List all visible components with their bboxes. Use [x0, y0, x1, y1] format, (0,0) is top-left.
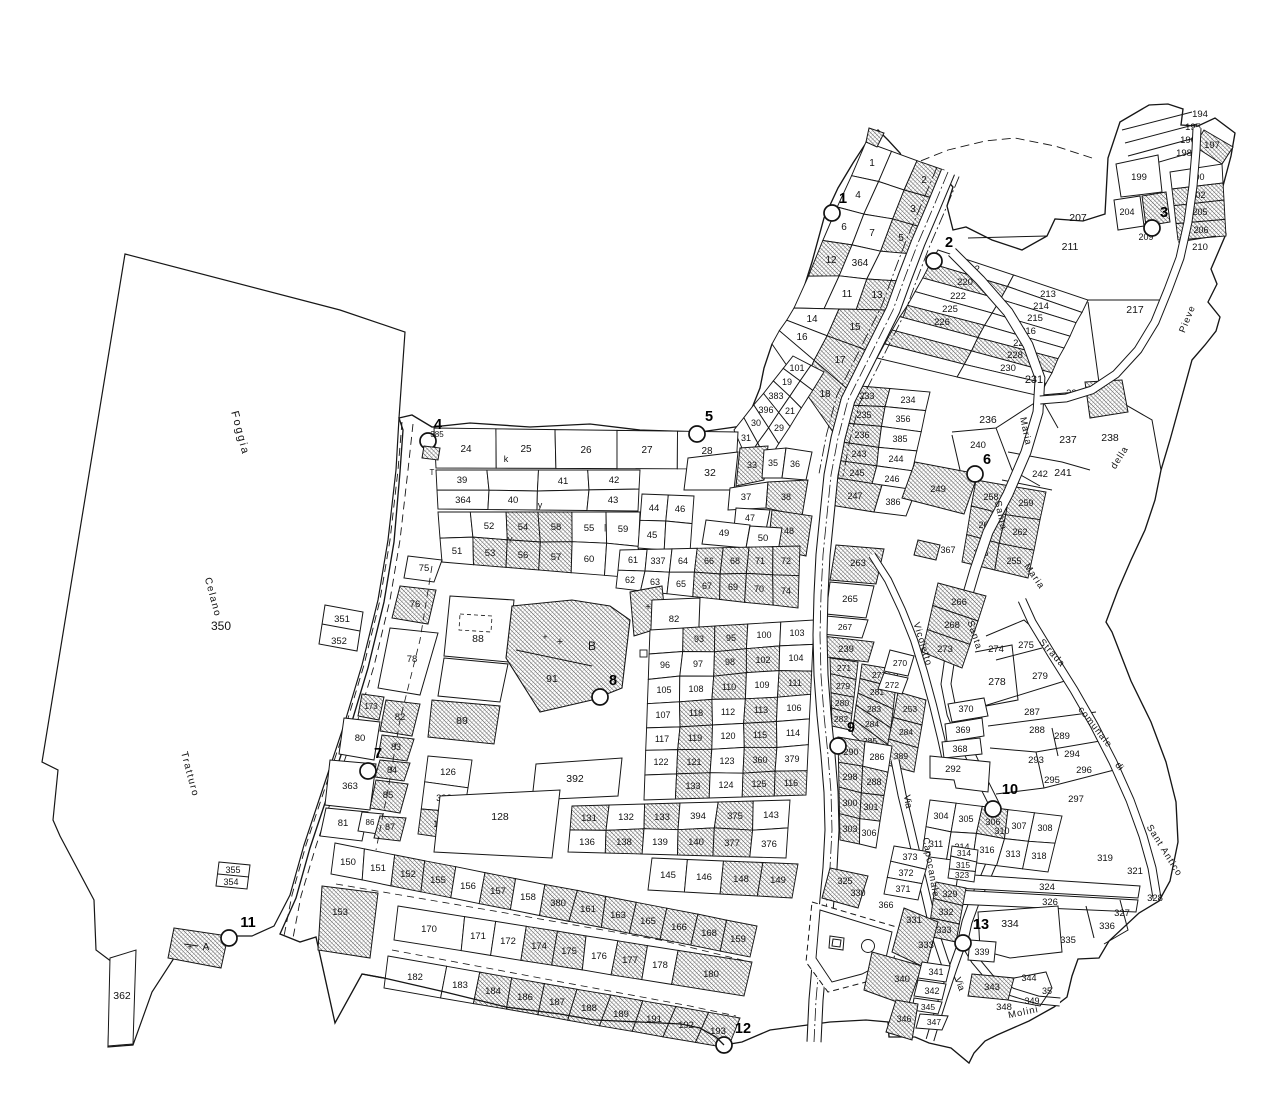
svg-text:133: 133 [654, 812, 670, 823]
svg-text:43: 43 [608, 495, 619, 506]
svg-text:189: 189 [613, 1009, 629, 1020]
svg-text:323: 323 [955, 870, 969, 880]
svg-text:1: 1 [839, 191, 847, 207]
svg-text:112: 112 [721, 707, 735, 717]
svg-text:297: 297 [1068, 794, 1084, 805]
svg-text:115: 115 [753, 730, 767, 740]
svg-text:35: 35 [768, 458, 778, 468]
svg-text:336: 336 [1099, 921, 1115, 932]
svg-text:5: 5 [898, 233, 904, 244]
svg-text:11: 11 [240, 915, 255, 931]
svg-text:333: 333 [936, 925, 951, 935]
svg-text:197: 197 [1204, 140, 1220, 151]
svg-text:295: 295 [1044, 775, 1060, 786]
svg-text:377: 377 [724, 838, 740, 849]
svg-text:287: 287 [1024, 707, 1040, 718]
svg-text:168: 168 [701, 928, 717, 939]
svg-text:165: 165 [640, 916, 656, 927]
svg-text:351: 351 [334, 614, 350, 625]
svg-text:284: 284 [899, 727, 913, 737]
svg-text:265: 265 [842, 594, 858, 605]
svg-text:247: 247 [847, 491, 862, 501]
svg-text:396: 396 [758, 405, 773, 415]
svg-text:346: 346 [896, 1014, 911, 1024]
svg-text:104: 104 [788, 653, 803, 663]
svg-text:17: 17 [834, 355, 846, 366]
svg-text:120: 120 [720, 731, 735, 741]
svg-text:389: 389 [894, 751, 908, 761]
svg-text:308: 308 [1037, 823, 1052, 833]
svg-text:145: 145 [660, 870, 676, 881]
svg-text:249: 249 [930, 484, 946, 495]
svg-text:373: 373 [902, 852, 917, 862]
svg-text:356: 356 [895, 414, 910, 424]
svg-text:204: 204 [1119, 207, 1134, 217]
svg-text:163: 163 [610, 910, 626, 921]
svg-text:46: 46 [675, 504, 686, 515]
svg-text:6: 6 [983, 452, 991, 468]
svg-text:42: 42 [609, 475, 620, 486]
svg-text:133: 133 [685, 781, 700, 791]
svg-text:380: 380 [550, 898, 566, 909]
svg-text:225: 225 [942, 304, 958, 315]
svg-text:58: 58 [551, 522, 562, 533]
svg-text:263: 263 [850, 558, 866, 569]
svg-text:344: 344 [1021, 973, 1036, 983]
svg-text:211: 211 [1062, 241, 1079, 253]
svg-text:8: 8 [609, 673, 617, 689]
svg-text:206: 206 [1193, 225, 1208, 235]
svg-text:166: 166 [671, 922, 687, 933]
svg-text:59: 59 [618, 524, 629, 535]
svg-text:106: 106 [786, 703, 801, 713]
svg-text:363: 363 [342, 781, 358, 792]
svg-text:72: 72 [781, 556, 791, 566]
svg-text:255: 255 [1006, 556, 1021, 566]
svg-text:19: 19 [782, 377, 792, 387]
svg-text:32: 32 [704, 467, 716, 479]
svg-text:33: 33 [747, 460, 757, 470]
svg-text:6: 6 [841, 222, 847, 233]
svg-text:259: 259 [1018, 498, 1033, 508]
svg-text:159: 159 [730, 934, 746, 945]
svg-text:76: 76 [410, 599, 421, 610]
svg-text:331: 331 [906, 915, 922, 926]
svg-text:171: 171 [470, 931, 486, 942]
svg-text:152: 152 [400, 869, 416, 880]
svg-text:A: A [203, 942, 210, 953]
svg-text:275: 275 [1018, 640, 1034, 651]
svg-text:300: 300 [842, 798, 857, 808]
svg-text:172: 172 [500, 936, 516, 947]
svg-text:82: 82 [669, 614, 680, 625]
svg-text:51: 51 [452, 546, 463, 557]
svg-text:2: 2 [945, 235, 953, 251]
svg-text:86: 86 [366, 818, 375, 827]
svg-text:198: 198 [1176, 148, 1192, 159]
svg-text:364: 364 [852, 258, 869, 269]
svg-text:242: 242 [1032, 469, 1048, 480]
svg-text:327: 327 [1114, 908, 1130, 919]
svg-text:40: 40 [508, 495, 519, 506]
svg-text:236: 236 [979, 414, 997, 426]
svg-text:132: 132 [618, 812, 634, 823]
svg-text:|: | [604, 523, 606, 532]
svg-text:35: 35 [1042, 986, 1052, 996]
svg-text:334: 334 [1001, 918, 1019, 930]
svg-text:360: 360 [752, 755, 767, 765]
svg-text:87: 87 [385, 822, 395, 832]
svg-text:296: 296 [1076, 765, 1092, 776]
svg-text:289: 289 [1054, 731, 1070, 742]
svg-text:217: 217 [1126, 304, 1144, 316]
svg-text:10: 10 [1002, 782, 1018, 798]
svg-text:7: 7 [374, 746, 382, 762]
svg-text:29: 29 [774, 423, 784, 433]
svg-text:149: 149 [770, 875, 786, 886]
svg-text:394: 394 [690, 811, 706, 822]
svg-text:Y: Y [507, 536, 513, 545]
svg-text:271: 271 [837, 663, 851, 673]
svg-text:335: 335 [1060, 935, 1076, 946]
svg-text:111: 111 [788, 678, 802, 688]
svg-text:48: 48 [784, 526, 794, 536]
svg-text:379: 379 [784, 754, 799, 764]
svg-text:230: 230 [1000, 363, 1016, 374]
svg-text:176: 176 [591, 951, 607, 962]
svg-text:304: 304 [933, 811, 948, 821]
svg-text:80: 80 [355, 733, 366, 744]
svg-text:283: 283 [867, 704, 881, 714]
svg-text:228: 228 [1007, 350, 1023, 361]
svg-text:236: 236 [854, 430, 869, 440]
svg-text:294: 294 [1064, 749, 1080, 760]
svg-text:5: 5 [705, 409, 713, 425]
svg-text:278: 278 [988, 676, 1006, 688]
svg-text:279: 279 [836, 681, 850, 691]
svg-text:75: 75 [419, 563, 430, 574]
svg-text:343: 343 [984, 982, 1000, 993]
svg-text:215: 215 [1027, 313, 1043, 324]
svg-text:355: 355 [225, 865, 240, 875]
svg-text:339: 339 [974, 947, 989, 957]
svg-text:194: 194 [1192, 109, 1208, 120]
svg-text:47: 47 [745, 513, 755, 523]
svg-text:107: 107 [655, 710, 670, 720]
svg-text:98: 98 [725, 657, 735, 667]
svg-text:153: 153 [332, 907, 348, 918]
svg-text:2: 2 [921, 175, 927, 186]
svg-text:180: 180 [703, 969, 719, 980]
svg-text:66: 66 [704, 556, 714, 566]
svg-text:21: 21 [785, 406, 795, 416]
svg-text:385: 385 [892, 434, 907, 444]
svg-text:124: 124 [718, 780, 733, 790]
svg-text:324: 324 [1039, 882, 1055, 893]
svg-text:280: 280 [835, 698, 849, 708]
svg-text:370: 370 [958, 704, 973, 714]
svg-text:274: 274 [988, 644, 1004, 655]
svg-text:138: 138 [616, 837, 632, 848]
svg-text:253: 253 [903, 704, 917, 714]
svg-text:53: 53 [485, 548, 496, 559]
svg-text:70: 70 [754, 584, 764, 594]
svg-text:146: 146 [696, 872, 712, 883]
svg-text:24: 24 [460, 444, 472, 455]
svg-text:31: 31 [741, 433, 751, 443]
svg-text:26: 26 [580, 445, 592, 456]
svg-text:333: 333 [918, 940, 934, 951]
svg-text:11: 11 [842, 289, 853, 300]
svg-text:128: 128 [491, 811, 509, 823]
svg-text:392: 392 [566, 773, 584, 785]
svg-text:210: 210 [1192, 242, 1208, 253]
svg-text:7: 7 [869, 228, 875, 239]
svg-text:279: 279 [1032, 671, 1048, 682]
svg-text:350: 350 [211, 619, 231, 633]
svg-text:55: 55 [584, 523, 595, 534]
svg-text:56: 56 [518, 550, 529, 561]
svg-text:220: 220 [957, 277, 973, 288]
svg-text:4: 4 [855, 190, 861, 201]
svg-text:89: 89 [456, 715, 468, 727]
svg-text:57: 57 [551, 552, 562, 563]
svg-text:352: 352 [331, 636, 347, 647]
svg-text:383: 383 [768, 391, 783, 401]
svg-text:+: + [187, 942, 192, 952]
svg-text:156: 156 [460, 881, 476, 892]
svg-text:231: 231 [1025, 374, 1043, 386]
svg-text:183: 183 [452, 980, 468, 991]
svg-text:375: 375 [727, 811, 743, 822]
svg-text:240: 240 [970, 440, 986, 451]
svg-text:272: 272 [885, 680, 899, 690]
svg-text:187: 187 [549, 997, 565, 1008]
svg-text:342: 342 [924, 986, 939, 996]
svg-text:288: 288 [1029, 725, 1045, 736]
svg-text:139: 139 [652, 837, 668, 848]
svg-text:246: 246 [884, 474, 899, 484]
svg-text:305: 305 [958, 814, 973, 824]
svg-text:125: 125 [751, 779, 766, 789]
svg-text:123: 123 [719, 756, 734, 766]
svg-text:93: 93 [694, 634, 704, 644]
svg-text:113: 113 [754, 705, 768, 715]
svg-text:148: 148 [733, 874, 749, 885]
svg-text:306: 306 [861, 828, 876, 838]
svg-text:131: 131 [581, 813, 597, 824]
svg-text:298: 298 [842, 772, 857, 782]
svg-text:88: 88 [472, 633, 484, 645]
svg-text:136: 136 [579, 837, 595, 848]
svg-text:207: 207 [1069, 212, 1087, 224]
svg-text:30: 30 [751, 418, 761, 428]
svg-text:367: 367 [940, 545, 955, 555]
svg-text:69: 69 [728, 582, 738, 592]
svg-text:329: 329 [942, 889, 957, 899]
svg-text:37: 37 [741, 492, 752, 503]
svg-text:234: 234 [900, 395, 915, 405]
svg-text:303: 303 [842, 824, 857, 834]
svg-text:126: 126 [440, 767, 456, 778]
svg-text:284: 284 [865, 719, 879, 729]
svg-text:64: 64 [678, 556, 688, 566]
svg-text:174: 174 [531, 941, 547, 952]
svg-text:182: 182 [407, 972, 423, 983]
svg-text:340: 340 [894, 974, 910, 985]
svg-text:52: 52 [484, 521, 495, 532]
svg-text:301: 301 [863, 802, 878, 812]
svg-text:110: 110 [722, 682, 736, 692]
svg-text:292: 292 [945, 764, 961, 775]
svg-text:143: 143 [763, 810, 779, 821]
svg-text:386: 386 [885, 497, 900, 507]
svg-text:273: 273 [937, 644, 953, 655]
svg-text:12: 12 [735, 1021, 751, 1037]
svg-text:262: 262 [1012, 527, 1027, 537]
svg-text:244: 244 [888, 454, 903, 464]
svg-text:+: + [542, 632, 547, 642]
svg-text:44: 44 [649, 503, 660, 514]
svg-text:177: 177 [622, 955, 638, 966]
svg-text:1: 1 [869, 158, 875, 169]
svg-text:+: + [557, 636, 563, 648]
svg-text:330: 330 [850, 888, 865, 898]
svg-text:347: 347 [927, 1017, 941, 1027]
svg-text:27: 27 [641, 445, 653, 456]
svg-text:151: 151 [370, 863, 386, 874]
svg-text:105: 105 [656, 685, 671, 695]
svg-text:+: + [645, 602, 651, 613]
svg-text:15: 15 [849, 322, 861, 333]
svg-text:150: 150 [340, 857, 356, 868]
svg-text:121: 121 [686, 757, 701, 767]
svg-text:238: 238 [1101, 432, 1119, 444]
svg-text:369: 369 [955, 725, 970, 735]
svg-text:237: 237 [1059, 434, 1077, 446]
svg-text:235: 235 [856, 410, 871, 420]
svg-text:293: 293 [1028, 755, 1044, 766]
svg-text:318: 318 [1031, 851, 1046, 861]
svg-text:54: 54 [518, 522, 529, 533]
svg-text:371: 371 [895, 884, 910, 894]
svg-text:117: 117 [655, 734, 669, 744]
svg-text:239: 239 [838, 644, 854, 655]
svg-text:170: 170 [421, 924, 437, 935]
svg-text:286: 286 [869, 752, 884, 762]
svg-text:368: 368 [952, 744, 967, 754]
svg-text:B: B [588, 639, 596, 653]
svg-text:362: 362 [113, 990, 131, 1002]
svg-text:12: 12 [825, 255, 837, 266]
svg-text:81: 81 [338, 818, 349, 829]
svg-text:328: 328 [1147, 893, 1163, 904]
svg-text:337: 337 [650, 556, 665, 566]
svg-text:325: 325 [837, 876, 852, 886]
svg-text:91: 91 [546, 673, 558, 685]
svg-text:49: 49 [719, 528, 730, 539]
svg-text:97: 97 [693, 659, 703, 669]
svg-text:65: 65 [676, 579, 686, 589]
svg-text:14: 14 [806, 314, 818, 325]
svg-text:366: 366 [878, 900, 893, 910]
svg-text:k: k [504, 454, 509, 464]
svg-text:222: 222 [950, 291, 966, 302]
svg-text:321: 321 [1127, 866, 1143, 877]
svg-text:60: 60 [584, 554, 595, 565]
svg-text:38: 38 [781, 492, 791, 502]
svg-text:140: 140 [688, 837, 704, 848]
svg-text:205: 205 [1192, 207, 1207, 217]
svg-text:114: 114 [786, 728, 800, 738]
svg-text:313: 313 [1005, 849, 1020, 859]
svg-text:103: 103 [789, 628, 804, 638]
svg-text:316: 316 [979, 845, 994, 855]
svg-text:18: 18 [819, 389, 831, 400]
svg-text:71: 71 [755, 556, 765, 566]
svg-text:61: 61 [628, 555, 638, 565]
svg-text:68: 68 [730, 556, 740, 566]
svg-text:188: 188 [581, 1003, 597, 1014]
svg-text:16: 16 [796, 332, 808, 343]
svg-text:319: 319 [1097, 853, 1113, 864]
svg-text:268: 268 [944, 620, 960, 631]
svg-text:307: 307 [1011, 821, 1026, 831]
svg-text:67: 67 [702, 581, 712, 591]
svg-text:364: 364 [455, 495, 471, 506]
svg-text:96: 96 [660, 660, 670, 670]
svg-text:155: 155 [430, 875, 446, 886]
svg-text:314: 314 [957, 848, 971, 858]
svg-text:332: 332 [938, 907, 953, 917]
svg-text:108: 108 [688, 684, 703, 694]
svg-text:100: 100 [756, 630, 771, 640]
svg-text:62: 62 [625, 575, 635, 585]
svg-text:T: T [430, 468, 435, 477]
svg-text:119: 119 [688, 733, 702, 743]
svg-text:122: 122 [653, 757, 668, 767]
svg-text:186: 186 [517, 992, 533, 1003]
svg-text:50: 50 [758, 533, 769, 544]
svg-text:270: 270 [893, 658, 907, 668]
svg-text:13: 13 [973, 917, 989, 933]
svg-text:266: 266 [951, 597, 967, 608]
svg-text:173: 173 [364, 702, 378, 711]
svg-text:y: y [538, 500, 543, 510]
svg-text:101: 101 [789, 363, 804, 373]
svg-text:118: 118 [689, 708, 703, 718]
svg-text:9: 9 [847, 720, 855, 736]
svg-text:161: 161 [580, 904, 596, 915]
svg-text:63: 63 [650, 577, 660, 587]
svg-text:267: 267 [838, 622, 852, 632]
svg-text:3: 3 [1160, 205, 1168, 221]
svg-text:372: 372 [898, 868, 913, 878]
svg-text:376: 376 [761, 839, 777, 850]
svg-text:243: 243 [851, 449, 866, 459]
svg-text:74: 74 [781, 586, 791, 596]
svg-text:158: 158 [520, 892, 536, 903]
svg-text:157: 157 [490, 886, 506, 897]
svg-text:3: 3 [910, 204, 916, 215]
svg-text:45: 45 [647, 530, 658, 541]
svg-text:315: 315 [956, 860, 970, 870]
svg-text:13: 13 [871, 290, 883, 301]
svg-text:95: 95 [726, 633, 736, 643]
svg-text:310: 310 [994, 826, 1009, 836]
svg-text:385: 385 [430, 430, 444, 439]
svg-text:288: 288 [866, 777, 881, 787]
